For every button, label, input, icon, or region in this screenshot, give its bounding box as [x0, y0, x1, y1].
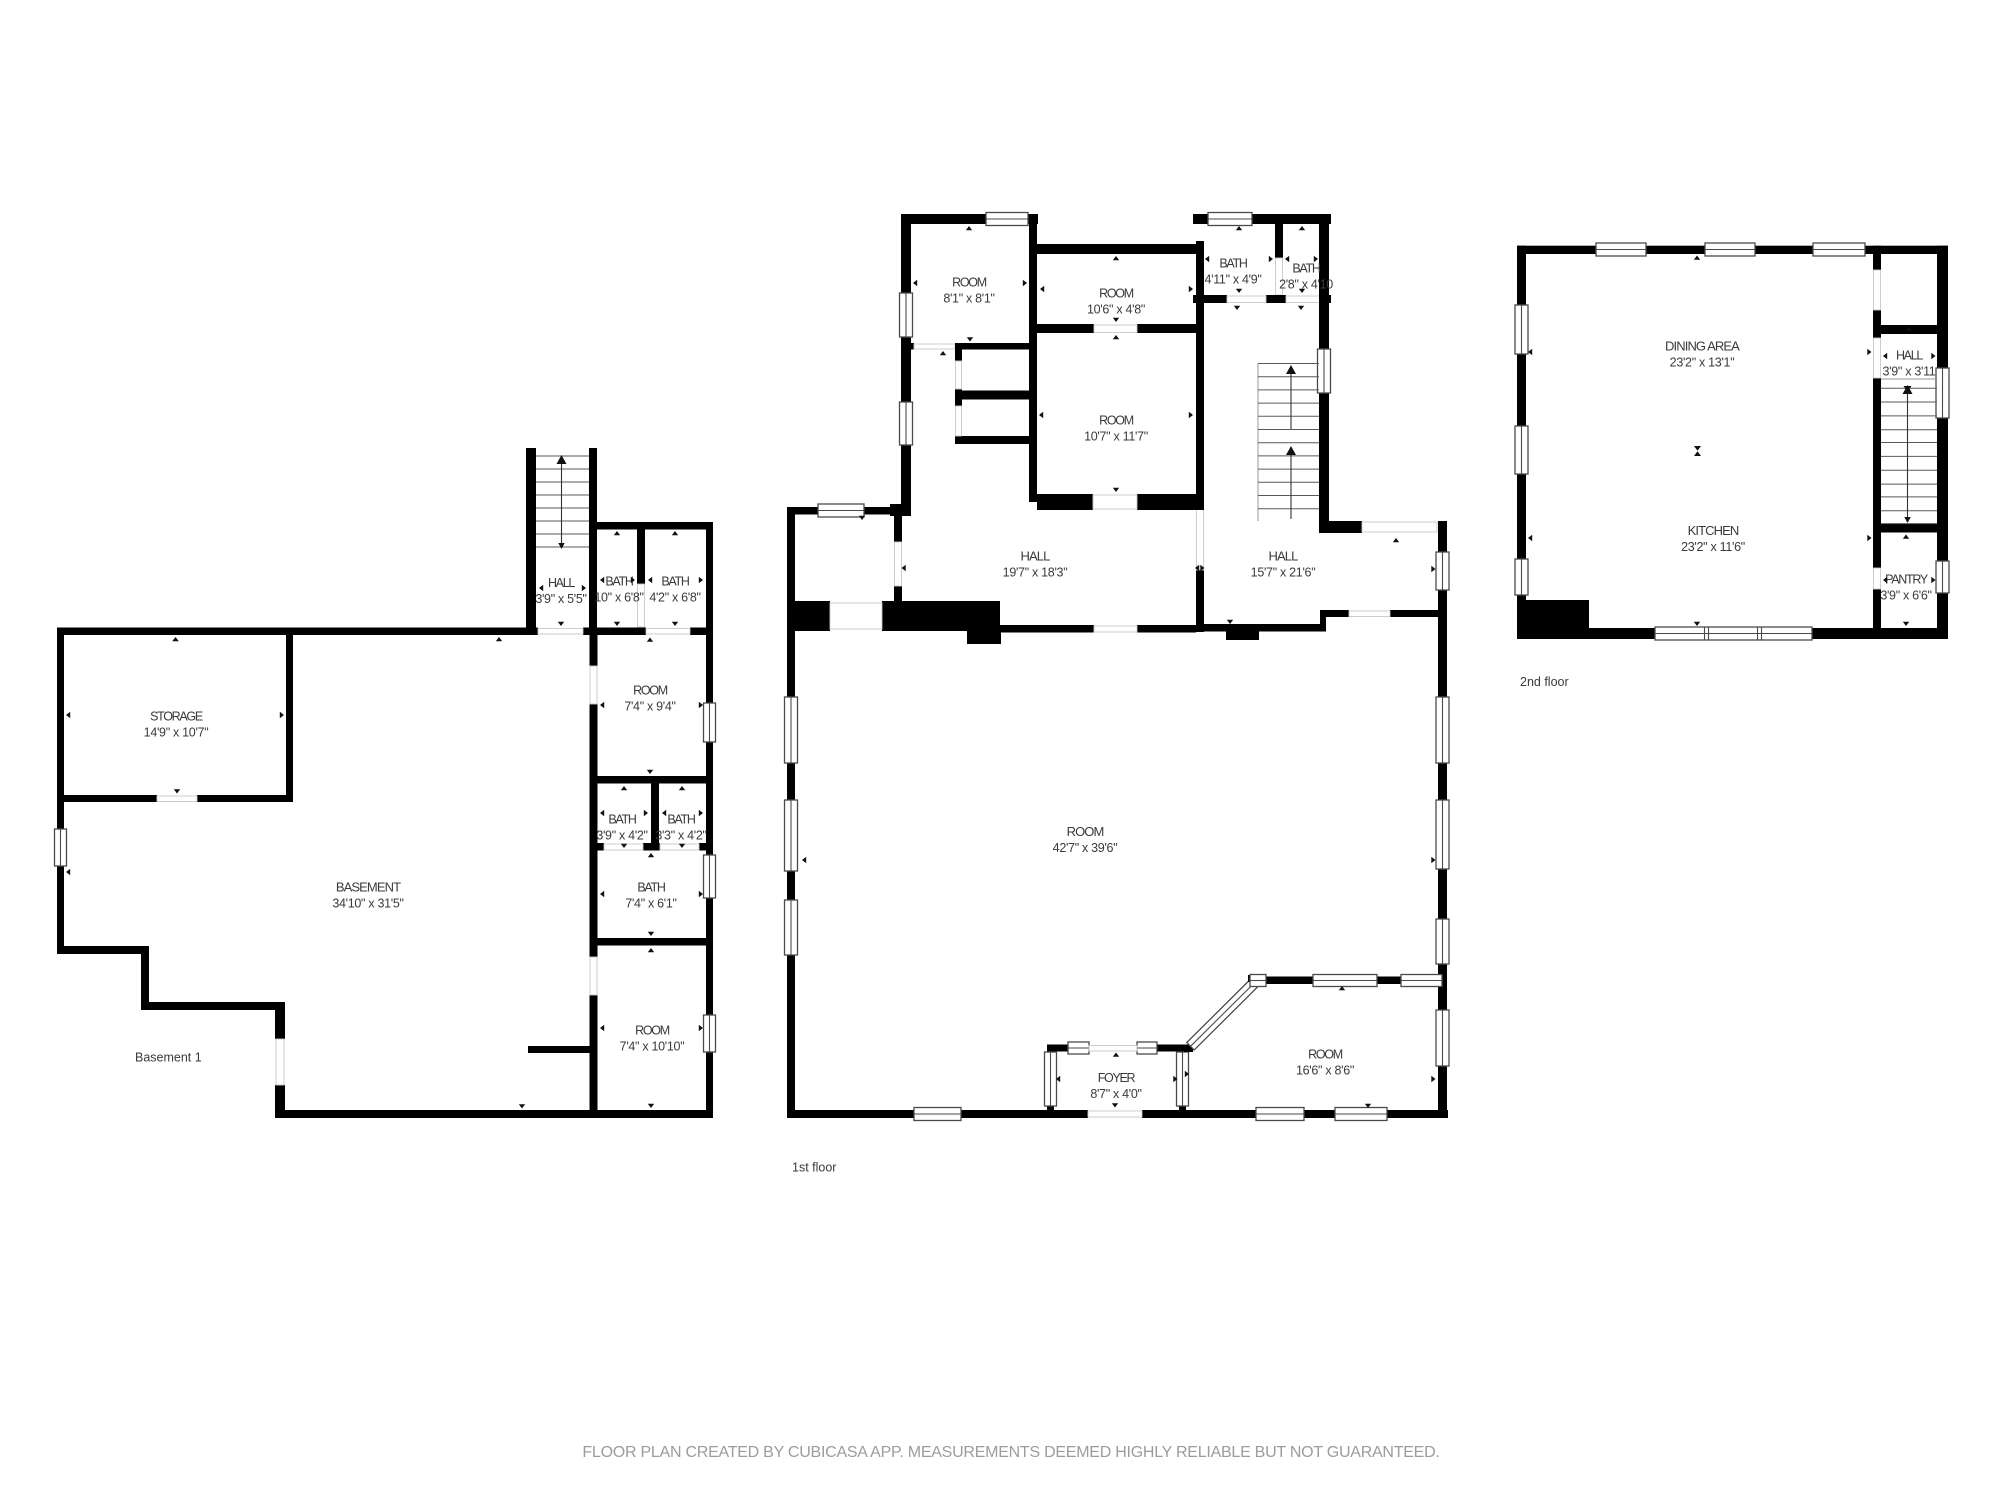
svg-text:BATH: BATH: [1292, 262, 1320, 276]
svg-text:3'9" x 5'5": 3'9" x 5'5": [535, 592, 586, 606]
svg-text:10'6" x 4'8": 10'6" x 4'8": [1087, 302, 1145, 316]
svg-text:Basement 1: Basement 1: [135, 1051, 202, 1065]
svg-text:ROOM: ROOM: [635, 1023, 670, 1037]
svg-text:BATH: BATH: [661, 575, 689, 589]
svg-text:HALL: HALL: [1896, 349, 1923, 363]
svg-text:10'7" x 11'7": 10'7" x 11'7": [1084, 430, 1148, 444]
svg-text:HALL: HALL: [548, 576, 575, 590]
svg-text:2nd floor: 2nd floor: [1520, 675, 1569, 689]
svg-text:KITCHEN: KITCHEN: [1688, 523, 1739, 538]
svg-text:3'9" x 3'11: 3'9" x 3'11: [1883, 365, 1936, 379]
svg-text:HALL: HALL: [1021, 549, 1051, 564]
svg-text:ROOM: ROOM: [633, 683, 668, 697]
svg-text:ROOM: ROOM: [1308, 1048, 1343, 1062]
svg-text:42'7" x 39'6": 42'7" x 39'6": [1053, 841, 1118, 855]
svg-text:7'4" x 6'1": 7'4" x 6'1": [625, 897, 676, 911]
svg-text:ROOM: ROOM: [1099, 414, 1134, 428]
svg-text:3'3" x 4'2": 3'3" x 4'2": [655, 829, 706, 843]
svg-text:BASEMENT: BASEMENT: [336, 880, 401, 895]
svg-text:14'9" x 10'7": 14'9" x 10'7": [144, 725, 209, 739]
svg-text:BATH: BATH: [605, 575, 633, 589]
svg-text:19'7" x 18'3": 19'7" x 18'3": [1003, 566, 1068, 580]
svg-text:FOYER: FOYER: [1098, 1071, 1136, 1085]
svg-text:BATH: BATH: [667, 813, 695, 827]
svg-text:2'8" x 4'10: 2'8" x 4'10: [1279, 278, 1333, 292]
svg-text:FLOOR PLAN CREATED BY CUBICASA: FLOOR PLAN CREATED BY CUBICASA APP. MEAS…: [582, 1444, 1439, 1461]
svg-text:4'11" x 4'9": 4'11" x 4'9": [1204, 272, 1261, 286]
svg-text:23'2" x 11'6": 23'2" x 11'6": [1681, 540, 1745, 554]
svg-text:BATH: BATH: [608, 813, 636, 827]
svg-text:3'9" x 6'6": 3'9" x 6'6": [1880, 589, 1931, 603]
svg-text:ROOM: ROOM: [1099, 286, 1134, 300]
svg-text:BATH: BATH: [1219, 256, 1247, 270]
svg-text:8'7" x 4'0": 8'7" x 4'0": [1090, 1087, 1141, 1101]
svg-text:16'6" x 8'6": 16'6" x 8'6": [1296, 1064, 1354, 1078]
svg-text:23'2" x 13'1": 23'2" x 13'1": [1670, 355, 1735, 369]
svg-text:HALL: HALL: [1269, 549, 1299, 564]
svg-text:7'4" x 10'10": 7'4" x 10'10": [620, 1039, 685, 1053]
svg-text:8'1" x 8'1": 8'1" x 8'1": [943, 292, 994, 306]
svg-text:3'9" x 4'2": 3'9" x 4'2": [596, 829, 647, 843]
svg-text:7'4" x 9'4": 7'4" x 9'4": [624, 699, 675, 713]
svg-text:15'7" x 21'6": 15'7" x 21'6": [1251, 566, 1316, 580]
svg-text:4'2" x 6'8": 4'2" x 6'8": [649, 591, 700, 605]
svg-text:PANTRY: PANTRY: [1885, 573, 1929, 587]
svg-text:34'10" x 31'5": 34'10" x 31'5": [332, 897, 403, 911]
svg-text:ROOM: ROOM: [1067, 824, 1104, 839]
svg-text:STORAGE: STORAGE: [150, 709, 203, 723]
svg-text:BATH: BATH: [637, 881, 665, 895]
svg-text:10" x 6'8": 10" x 6'8": [594, 591, 643, 605]
svg-text:ROOM: ROOM: [952, 276, 987, 290]
svg-text:DINING AREA: DINING AREA: [1665, 338, 1740, 353]
svg-text:1st floor: 1st floor: [792, 1161, 836, 1175]
